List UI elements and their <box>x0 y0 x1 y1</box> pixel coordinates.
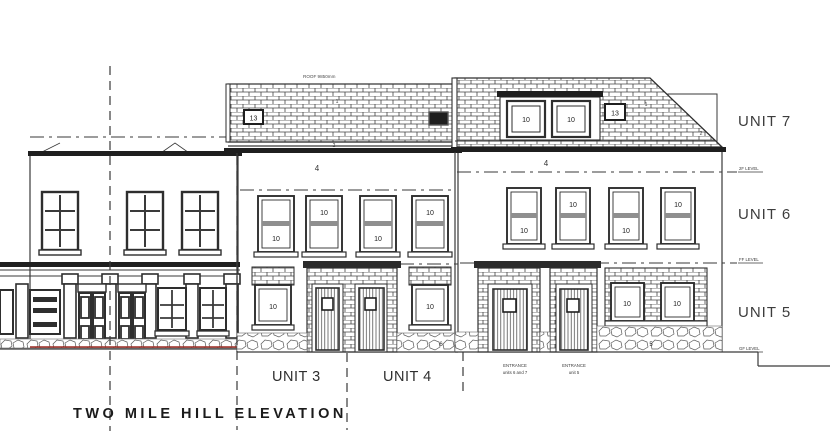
door-cornice <box>303 261 401 268</box>
stone-plinth <box>455 332 478 352</box>
shop-window <box>0 290 13 334</box>
drawing-title: TWO MILE HILL ELEVATION <box>73 406 347 422</box>
unit3-label: UNIT 3 <box>272 369 321 385</box>
gf-window: 10 <box>661 283 694 321</box>
stone-plinth <box>540 332 550 352</box>
eaves-band <box>451 147 726 152</box>
unit6-label: UNIT 6 <box>738 206 791 223</box>
wall-key-number: 4 <box>544 159 549 168</box>
svg-text:13: 13 <box>611 111 619 118</box>
entrance-door-block <box>303 261 401 352</box>
sash-window: 10 <box>356 196 400 257</box>
drawing-canvas: ROOF 9850mm 13 1 2 4 10 10 <box>0 0 830 439</box>
svg-text:13: 13 <box>250 116 258 123</box>
pilaster <box>186 284 198 338</box>
svg-text:10: 10 <box>623 301 631 308</box>
eaves-band <box>224 148 462 153</box>
panel-double-door <box>118 284 146 346</box>
louvre-window <box>30 290 60 334</box>
svg-text:10: 10 <box>269 304 277 311</box>
sash-window: 10 <box>605 188 647 249</box>
rooflight-tag: 13 <box>244 110 263 124</box>
svg-text:10: 10 <box>567 117 575 124</box>
shopfront <box>0 262 240 349</box>
svg-text:10: 10 <box>673 301 681 308</box>
eaves-fascia <box>28 151 242 156</box>
pilaster <box>226 284 238 338</box>
door-vision-panel <box>365 298 376 310</box>
panel-double-door <box>78 284 106 346</box>
entrance-door-block <box>550 268 597 352</box>
door-vision-panel <box>503 299 516 312</box>
eaves-key-number: 2 <box>700 131 703 137</box>
entrance-door <box>560 289 588 350</box>
door-vision-panel <box>322 298 333 310</box>
entablature <box>0 262 240 267</box>
roof-fascia-lines <box>228 142 455 146</box>
entrance-door <box>355 284 387 352</box>
rooflight-tag: 13 <box>605 104 625 120</box>
svg-text:10: 10 <box>522 117 530 124</box>
level-label-2f: 2F LEVEL <box>739 166 759 171</box>
svg-text:10: 10 <box>426 304 434 311</box>
dormer-window: 10 <box>507 101 545 137</box>
svg-text:10: 10 <box>426 210 434 217</box>
unit3-gf-window: 10 <box>252 267 294 330</box>
sill-band <box>605 321 707 326</box>
stone-plinth <box>397 333 458 352</box>
entrance-label-units67-line1: ENTRANCE <box>503 363 527 368</box>
svg-text:10: 10 <box>622 228 630 235</box>
roof-dimension-note: ROOF 9850mm <box>303 74 336 79</box>
sash-window: 10 <box>503 188 545 249</box>
pilaster <box>64 284 76 338</box>
unit5-brick-panel: 10 10 <box>605 268 707 326</box>
left-existing-building <box>0 137 242 349</box>
svg-text:10: 10 <box>272 236 280 243</box>
stone-plinth <box>237 333 307 352</box>
elevation-drawing: ROOF 9850mm 13 1 2 4 10 10 <box>0 0 830 439</box>
svg-text:10: 10 <box>520 228 528 235</box>
dormer-window: 10 <box>552 101 590 137</box>
gf-window: 10 <box>611 283 644 321</box>
entrance-label-units67-line2: units 6 and 7 <box>503 370 528 375</box>
party-parapet <box>452 78 457 148</box>
entrance-door <box>493 289 527 350</box>
svg-text:10: 10 <box>569 202 577 209</box>
rooflight-tag-dark <box>429 112 448 125</box>
door-vision-panel <box>567 299 579 312</box>
slate-key-number: 1 <box>645 102 648 108</box>
level-label-ff: FF LEVEL <box>739 257 759 262</box>
dormer-fascia <box>497 91 603 97</box>
entrance-door-block <box>478 268 540 352</box>
sash-window: 10 <box>408 196 452 257</box>
slate-key-number: 1 <box>336 99 339 105</box>
entrance-label-unit5-line2: unit 5 <box>569 370 580 375</box>
level-label-gf: GF LEVEL <box>739 346 760 351</box>
shop-window <box>155 288 189 336</box>
unit7-label: UNIT 7 <box>738 113 791 130</box>
corbel <box>62 274 78 284</box>
sash-window: 10 <box>302 196 346 257</box>
svg-text:10: 10 <box>674 202 682 209</box>
parapet <box>226 84 230 142</box>
units-3-4-building: ROOF 9850mm 13 1 2 4 10 10 <box>224 74 462 352</box>
stone-plinth <box>597 326 722 352</box>
wall-key-number: 4 <box>315 164 320 173</box>
sash-window: 10 <box>657 188 699 249</box>
unit4-gf-window: 10 <box>409 267 451 330</box>
entrance-door <box>312 284 343 352</box>
door-cornice <box>474 261 601 268</box>
entrance-label-unit5-line1: ENTRANCE <box>562 363 586 368</box>
sash-window <box>179 192 221 255</box>
svg-text:10: 10 <box>374 236 382 243</box>
pilaster <box>16 284 28 338</box>
svg-text:10: 10 <box>320 210 328 217</box>
sash-window: 10 <box>552 188 594 249</box>
sash-window <box>39 192 81 255</box>
sash-window <box>124 192 166 255</box>
unit5-label: UNIT 5 <box>738 304 791 321</box>
sash-window: 10 <box>254 196 298 257</box>
corbel <box>142 274 158 284</box>
dormer: 10 10 <box>497 91 603 140</box>
unit4-label: UNIT 4 <box>383 369 432 385</box>
corbel <box>184 274 200 284</box>
shop-window <box>197 288 229 336</box>
